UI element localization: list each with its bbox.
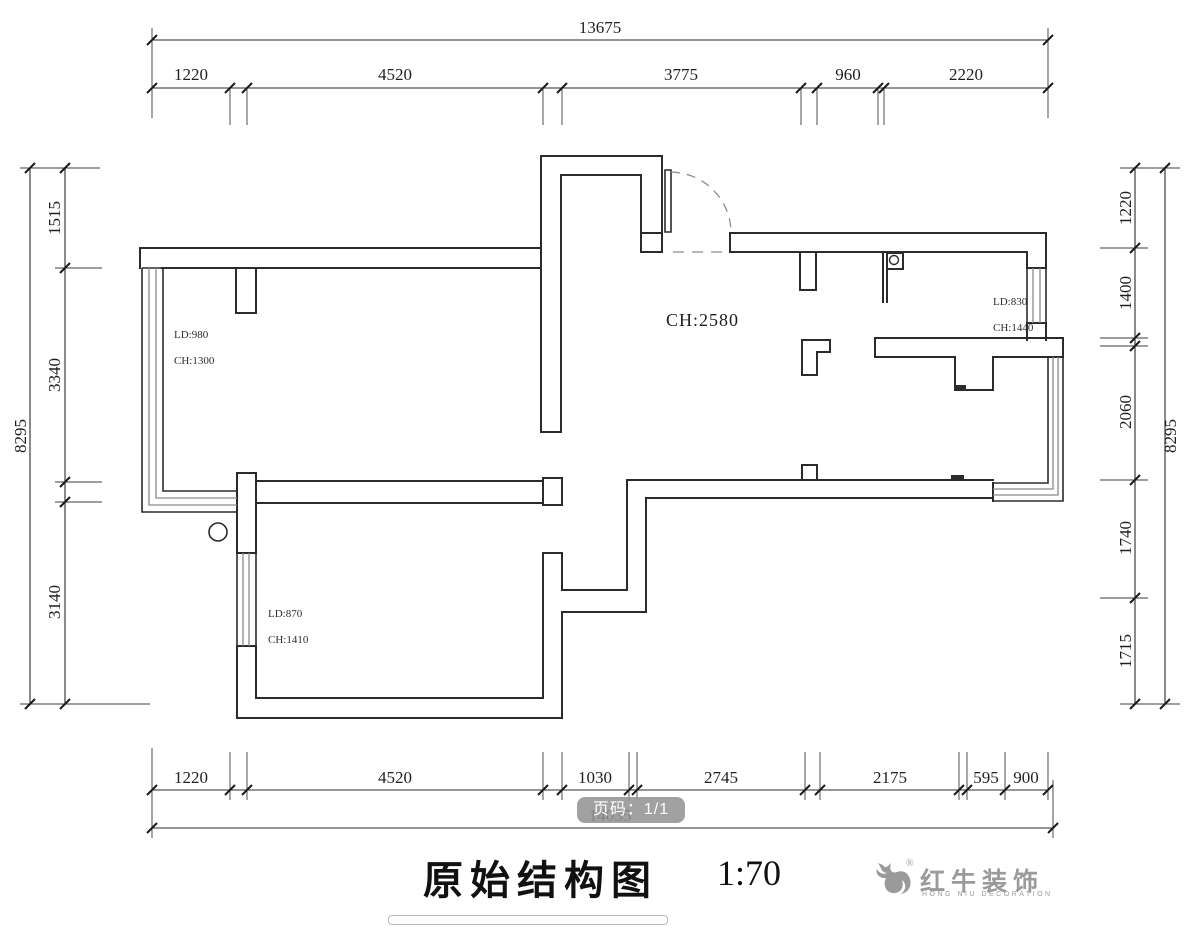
dimension-lines [30, 40, 1165, 828]
window-label-lower: LD:870 CH:1410 [257, 595, 308, 660]
registered-mark: ® [906, 858, 914, 869]
column-circle-symbol [209, 523, 227, 541]
dim-right-2: 1400 [1116, 276, 1136, 310]
dim-left-1: 1515 [45, 201, 65, 235]
bay-window-right [993, 357, 1063, 501]
window-lower [237, 553, 256, 646]
dim-top-total: 13675 [579, 18, 622, 38]
window-left [142, 268, 237, 512]
sheet-scale: 1:70 [717, 852, 781, 894]
page-number-badge: 页码：1/1 [577, 797, 685, 823]
dim-bottom-4: 2745 [704, 768, 738, 788]
dim-left-2: 3340 [45, 358, 65, 392]
dim-bottom-6: 595 [973, 768, 999, 788]
dim-right-3: 2060 [1116, 395, 1136, 429]
dim-top-4: 960 [835, 65, 861, 85]
dim-bottom-7: 900 [1013, 768, 1039, 788]
title-underline-bar[interactable] [388, 915, 668, 925]
dim-bottom-2: 4520 [378, 768, 412, 788]
dim-right-5: 1715 [1116, 634, 1136, 668]
window-label-right: LD:830 CH:1440 [982, 283, 1033, 348]
meter-circle-symbol [890, 256, 899, 265]
dimension-ticks [25, 35, 1170, 833]
dim-top-1: 1220 [174, 65, 208, 85]
dim-bottom-3: 1030 [578, 768, 612, 788]
dim-left-total: 8295 [11, 419, 31, 453]
window-label-left: LD:980 CH:1300 [163, 316, 214, 381]
extension-lines [20, 28, 1180, 838]
dim-bottom-1: 1220 [174, 768, 208, 788]
sheet-title: 原始结构图 [423, 848, 658, 906]
entry-door [665, 170, 731, 252]
dim-left-3: 3140 [45, 585, 65, 619]
dim-right-total: 8295 [1161, 419, 1181, 453]
dim-bottom-5: 2175 [873, 768, 907, 788]
dim-top-5: 2220 [949, 65, 983, 85]
company-logo: ® 红牛装饰 HONG NIU DECORATION [874, 858, 1084, 906]
dim-right-1: 1220 [1116, 191, 1136, 225]
dim-top-3: 3775 [664, 65, 698, 85]
drawing-sheet: 13675 1220 4520 3775 960 2220 1220 4520 … [0, 0, 1200, 952]
dim-right-4: 1740 [1116, 521, 1136, 555]
logo-subtitle: HONG NIU DECORATION [922, 891, 1053, 898]
dim-top-2: 4520 [378, 65, 412, 85]
ceiling-height-label: CH:2580 [666, 310, 739, 331]
